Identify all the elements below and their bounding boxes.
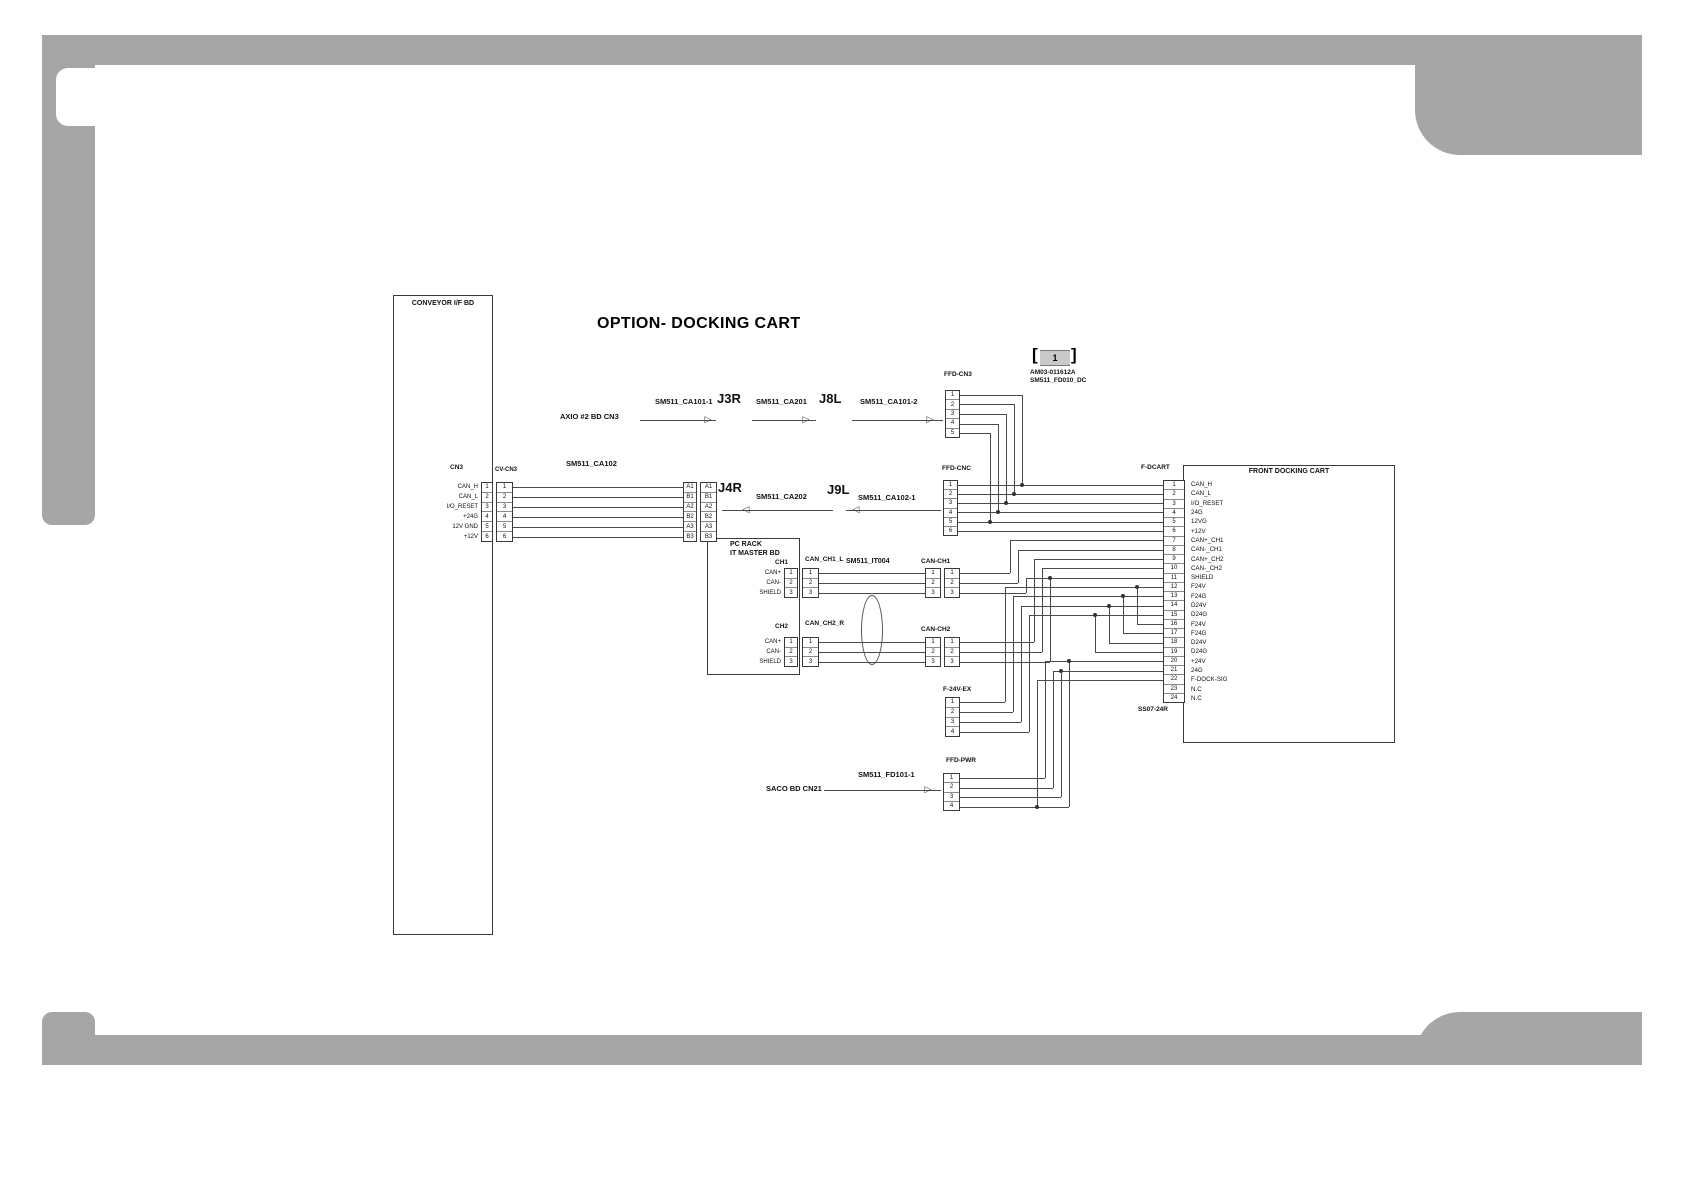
pin-cell: 20 (1164, 656, 1184, 665)
pin-cell: CAN+_CH2 (1191, 554, 1301, 563)
wire-segment (1006, 414, 1007, 503)
pin-cell: 3 (1164, 499, 1184, 508)
cv-cn3-pin-box: 123456 (496, 482, 513, 542)
ch2-pin-box-left: 123 (784, 637, 798, 667)
pin-cell: 2 (785, 578, 797, 588)
pin-cell: 1 (803, 638, 818, 647)
junction-dot (1035, 805, 1039, 809)
pin-cell: 1 (945, 569, 959, 578)
wire-segment (960, 583, 1018, 584)
can-ch1-pin-box-right: 123 (944, 568, 960, 598)
cable-bundle-icon (861, 595, 883, 665)
pin-cell: 21 (1164, 665, 1184, 674)
wire-segment (1095, 652, 1163, 653)
pin-cell: 6 (944, 526, 957, 535)
pin-cell: +12V (1191, 526, 1301, 535)
pin-cell: D24V (1191, 638, 1301, 647)
wire-segment (513, 507, 683, 508)
can-ch1-l-cable-label: CAN_CH1_L (805, 556, 843, 563)
pin-cell: CAN-_CH2 (1191, 564, 1301, 573)
wire-segment (1018, 550, 1163, 551)
wire-segment (960, 414, 1006, 415)
pin-cell: F-DOCK-SIG (1191, 675, 1301, 684)
wire-segment (1137, 587, 1138, 624)
pin-cell: 4 (497, 511, 512, 521)
pin-cell: 1 (926, 638, 940, 647)
wire-segment (722, 510, 833, 511)
pin-cell: 4 (944, 801, 959, 810)
wire-segment (1045, 661, 1046, 778)
pin-cell: B2 (701, 511, 716, 521)
arrow-right-icon (803, 415, 810, 424)
pin-cell: CAN- (738, 647, 781, 657)
pin-cell: 3 (945, 587, 959, 597)
arrow-left-icon (743, 505, 750, 514)
pin-cell: 5 (946, 428, 959, 437)
pin-cell: 17 (1164, 628, 1184, 637)
pin-cell: +12V (398, 532, 478, 542)
wire-segment (1037, 680, 1038, 807)
pin-cell: 7 (1164, 536, 1184, 545)
pin-cell: 2 (946, 399, 959, 408)
wire-segment (1042, 568, 1163, 569)
pin-cell: 6 (482, 531, 492, 541)
junction-dot (1012, 492, 1016, 496)
pin-cell: D24G (1191, 647, 1301, 656)
can-ch2-r-cable-label: CAN_CH2_R (805, 620, 844, 627)
junction-dot (1121, 594, 1125, 598)
pin-cell: CAN- (738, 578, 781, 588)
connector-label-j4r: J4R (718, 481, 742, 496)
wire-segment (1042, 568, 1043, 652)
wire-segment (1010, 540, 1163, 541)
pin-cell: 18 (1164, 637, 1184, 646)
wire-segment (1053, 671, 1054, 788)
pin-cell: 2 (926, 578, 940, 588)
pin-cell: 2 (803, 647, 818, 657)
pin-cell: I/O_RESET (398, 502, 478, 512)
pin-cell: F24G (1191, 592, 1301, 601)
wire-segment (1018, 550, 1019, 583)
cable-label-ca101-1: SM511_CA101-1 (655, 398, 713, 407)
pin-cell: 1 (803, 569, 818, 578)
pin-cell: 2 (946, 707, 959, 717)
ab-pin-box-right: A1B1A2B2A3B3 (700, 482, 717, 542)
junction-dot (1004, 501, 1008, 505)
can-ch2-label: CAN-CH2 (921, 626, 950, 633)
wire-segment (819, 593, 925, 594)
pin-cell: B2 (684, 511, 696, 521)
pin-cell: A1 (701, 483, 716, 492)
pin-cell: 3 (926, 587, 940, 597)
pin-cell: CAN+ (738, 637, 781, 647)
page-title: OPTION- DOCKING CART (597, 315, 801, 333)
wire-segment (1109, 606, 1110, 643)
pin-cell: 15 (1164, 610, 1184, 619)
connector-label-j3r: J3R (717, 392, 741, 407)
junction-dot (1020, 483, 1024, 487)
wire-segment (1026, 578, 1027, 593)
pin-cell: CAN+_CH1 (1191, 536, 1301, 545)
pin-cell: 4 (1164, 508, 1184, 517)
pin-cell: N.C (1191, 685, 1301, 694)
saco-source-label: SACO BD CN21 (766, 785, 822, 794)
junction-dot (1067, 659, 1071, 663)
pin-cell: 1 (945, 638, 959, 647)
pin-cell: CAN_H (398, 482, 478, 492)
junction-dot (988, 520, 992, 524)
can-ch1-label: CAN-CH1 (921, 558, 950, 565)
ffd-pwr-pin-box: 1234 (943, 773, 960, 811)
cable-label-ca102-1: SM511_CA102-1 (858, 494, 916, 503)
pin-cell: 3 (803, 656, 818, 666)
pin-cell: CAN-_CH1 (1191, 545, 1301, 554)
pin-cell: 24G (1191, 508, 1301, 517)
pin-cell: F24G (1191, 629, 1301, 638)
pin-cell: 3 (497, 502, 512, 512)
wire-segment (958, 531, 1163, 532)
wire-segment (846, 510, 941, 511)
wire-segment (824, 790, 941, 791)
pin-cell: 5 (1164, 517, 1184, 526)
pin-cell: B1 (701, 492, 716, 502)
wire-segment (960, 702, 1005, 703)
bracket-left-icon (1032, 346, 1038, 363)
pin-cell: F24V (1191, 582, 1301, 591)
pin-cell: 2 (926, 647, 940, 657)
pin-cell: 3 (946, 717, 959, 727)
pin-cell: 24 (1164, 693, 1184, 702)
junction-dot (1059, 669, 1063, 673)
can-ch1-pin-box-left: 123 (925, 568, 941, 598)
wire-segment (960, 395, 1022, 396)
pin-cell: D24V (1191, 601, 1301, 610)
pin-cell: A3 (684, 521, 696, 531)
wire-segment (1026, 578, 1163, 579)
ch1-pin-box-left: 123 (784, 568, 798, 598)
wire-segment (960, 732, 1029, 733)
pin-cell: CAN_H (1191, 480, 1301, 489)
wire-segment (1029, 615, 1030, 732)
wire-segment (1010, 540, 1011, 573)
pin-cell: +24G (398, 512, 478, 522)
pin-cell: CAN_L (398, 492, 478, 502)
pin-cell: 3 (482, 502, 492, 512)
pin-cell: A2 (684, 502, 696, 512)
pin-cell: 2 (1164, 489, 1184, 498)
pin-cell: 16 (1164, 619, 1184, 628)
it004-cable-label: SM511_IT004 (846, 558, 890, 566)
pin-cell: 12V GND (398, 522, 478, 532)
pin-cell: A2 (701, 502, 716, 512)
pin-cell: I/O_RESET (1191, 499, 1301, 508)
wire-segment (1045, 661, 1163, 662)
conveyor-board-box (393, 295, 493, 935)
pin-cell: 24G (1191, 666, 1301, 675)
wire-segment (1095, 615, 1096, 652)
connector-label-j9l: J9L (827, 483, 849, 498)
cn3-label: CN3 (450, 464, 463, 471)
wire-segment (1123, 596, 1124, 633)
ffd-cn3-pin-box: 12345 (945, 390, 960, 438)
f-dcart-pin-box: 123456789101112131415161718192021222324 (1163, 480, 1185, 703)
ch1-pin-names: CAN+CAN-SHIELD (738, 568, 781, 598)
pin-cell: 3 (945, 656, 959, 666)
wire-segment (819, 583, 925, 584)
pin-cell: 9 (1164, 554, 1184, 563)
pin-cell: 4 (946, 726, 959, 736)
wire-segment (958, 494, 1163, 495)
wire-segment (960, 404, 1014, 405)
pin-cell: 1 (785, 569, 797, 578)
wire-segment (1013, 596, 1014, 712)
pin-cell: 4 (946, 418, 959, 427)
part-marker: 1 (1040, 350, 1070, 366)
pin-cell: 22 (1164, 674, 1184, 683)
pin-cell: 1 (1164, 481, 1184, 489)
cable-label-ca101-2: SM511_CA101-2 (860, 398, 918, 407)
pin-cell: 2 (482, 492, 492, 502)
wire-segment (960, 573, 1010, 574)
ffd-cnc-pin-box: 123456 (943, 480, 958, 536)
connector-label-j8l: J8L (819, 392, 841, 407)
wire-segment (960, 642, 1034, 643)
arrow-right-icon (705, 415, 712, 424)
cable-label-ca202: SM511_CA202 (756, 493, 807, 502)
pin-cell: 12 (1164, 582, 1184, 591)
pin-cell: 1 (944, 481, 957, 489)
cn3-pin-box: 123456 (481, 482, 493, 542)
pin-cell: A3 (701, 521, 716, 531)
wire-segment (990, 433, 991, 522)
pin-cell: 11 (1164, 573, 1184, 582)
junction-dot (1048, 576, 1052, 580)
pin-cell: 5 (482, 521, 492, 531)
wire-segment (1034, 559, 1163, 560)
pin-cell: 1 (785, 638, 797, 647)
pin-cell: 19 (1164, 647, 1184, 656)
wire-segment (1069, 661, 1070, 807)
pin-cell: 2 (945, 647, 959, 657)
pin-cell: 1 (946, 698, 959, 707)
wire-segment (819, 573, 925, 574)
pin-cell: F24V (1191, 619, 1301, 628)
pin-cell: B1 (684, 492, 696, 502)
pin-cell: 5 (497, 521, 512, 531)
pin-cell: D24G (1191, 610, 1301, 619)
pin-cell: 14 (1164, 600, 1184, 609)
f24v-ex-pin-box: 1234 (945, 697, 960, 737)
pin-cell: 8 (1164, 545, 1184, 554)
pin-cell: 1 (926, 569, 940, 578)
cable-label-ca201: SM511_CA201 (756, 398, 807, 407)
pin-cell: 1 (944, 774, 959, 782)
wire-segment (1022, 395, 1023, 485)
pc-rack-title-line2: IT MASTER BD (730, 550, 780, 558)
wire-segment (1037, 680, 1163, 681)
pin-cell: 2 (803, 578, 818, 588)
ch2-pin-box-right: 123 (802, 637, 819, 667)
pin-cell: 23 (1164, 684, 1184, 693)
wire-segment (1034, 559, 1035, 642)
arrow-left-icon (853, 505, 860, 514)
pin-cell: 6 (1164, 526, 1184, 535)
wire-segment (960, 807, 1069, 808)
pin-cell: 2 (785, 647, 797, 657)
f24v-ex-label: F-24V-EX (943, 686, 971, 693)
pin-cell: 3 (944, 498, 957, 507)
wire-segment (958, 485, 1163, 486)
wire-segment (958, 503, 1163, 504)
pin-cell: B3 (701, 531, 716, 541)
pin-cell: 4 (482, 511, 492, 521)
wire-segment (1005, 587, 1006, 702)
pin-cell: 10 (1164, 563, 1184, 572)
can-ch2-pin-box-left: 123 (925, 637, 941, 667)
pin-cell: 2 (944, 782, 959, 791)
cn3-pin-names: CAN_HCAN_LI/O_RESET+24G12V GND+12V (398, 482, 478, 542)
wire-segment (513, 537, 683, 538)
pin-cell: 4 (944, 508, 957, 517)
pin-cell: 1 (497, 483, 512, 492)
ss07-24r-label: SS07-24R (1138, 706, 1168, 713)
wire-segment (1021, 606, 1022, 722)
ch1-label: CH1 (775, 559, 788, 566)
wire-segment (958, 512, 1163, 513)
pin-cell: 6 (497, 531, 512, 541)
junction-dot (996, 510, 1000, 514)
wire-segment (960, 593, 1026, 594)
bracket-right-icon (1071, 346, 1077, 363)
pin-cell: 2 (944, 489, 957, 498)
f-dcart-pin-names: CAN_HCAN_LI/O_RESET24G12VG+12VCAN+_CH1CA… (1191, 480, 1301, 703)
pin-cell: 13 (1164, 591, 1184, 600)
wire-segment (513, 517, 683, 518)
pin-cell: CAN_L (1191, 489, 1301, 498)
pin-cell: 3 (785, 587, 797, 597)
pin-cell: SHIELD (1191, 573, 1301, 582)
part-number-label: AM03-011612A (1030, 369, 1076, 376)
arrow-right-icon (925, 785, 932, 794)
pin-cell: 12VG (1191, 517, 1301, 526)
wire-segment (998, 424, 999, 512)
ch2-label: CH2 (775, 623, 788, 630)
pin-cell: N.C (1191, 694, 1301, 703)
ffd-cnc-label: FFD-CNC (942, 465, 971, 472)
pin-cell: 3 (803, 587, 818, 597)
pin-cell: 3 (926, 656, 940, 666)
wire-segment (960, 778, 1045, 779)
wire-segment (1109, 643, 1163, 644)
front-docking-cart-title: FRONT DOCKING CART (1183, 468, 1395, 476)
pin-cell: 5 (944, 517, 957, 526)
wire-segment (1123, 633, 1163, 634)
wire-segment (1137, 624, 1163, 625)
wire-segment (1050, 578, 1051, 662)
cable-label-ca102: SM511_CA102 (566, 460, 617, 469)
part-name-label: SM511_FD010_DC (1030, 377, 1086, 384)
wiring-diagram: CONVEYOR I/F BD OPTION- DOCKING CART AXI… (0, 0, 1684, 1190)
pin-cell: +24V (1191, 657, 1301, 666)
ffd-pwr-label: FFD-PWR (946, 757, 976, 764)
conveyor-board-title: CONVEYOR I/F BD (396, 300, 490, 308)
pin-cell: A1 (684, 483, 696, 492)
ab-pin-box-left: A1B1A2B2A3B3 (683, 482, 697, 542)
f-dcart-label: F-DCART (1141, 464, 1170, 471)
junction-dot (1107, 604, 1111, 608)
pin-cell: 1 (482, 483, 492, 492)
pin-cell: 3 (946, 409, 959, 418)
schematic-page: CONVEYOR I/F BD OPTION- DOCKING CART AXI… (0, 0, 1684, 1190)
pin-cell: SHIELD (738, 588, 781, 598)
pin-cell: B3 (684, 531, 696, 541)
wire-segment (960, 722, 1021, 723)
axio-source-label: AXIO #2 BD CN3 (560, 413, 619, 422)
wire-segment (513, 527, 683, 528)
can-ch2-pin-box-right: 123 (944, 637, 960, 667)
pc-rack-title-line1: PC RACK (730, 541, 762, 549)
pin-cell: SHIELD (738, 657, 781, 667)
pin-cell: CAN+ (738, 568, 781, 578)
wire-segment (1014, 404, 1015, 494)
pin-cell: 3 (785, 656, 797, 666)
ch1-pin-box-right: 123 (802, 568, 819, 598)
junction-dot (1135, 585, 1139, 589)
wire-segment (960, 788, 1053, 789)
pin-cell: 2 (945, 578, 959, 588)
wire-segment (1005, 587, 1163, 588)
wire-segment (513, 497, 683, 498)
ffd-cn3-label: FFD-CN3 (944, 371, 972, 378)
pin-cell: 1 (946, 391, 959, 399)
wire-segment (1013, 596, 1163, 597)
arrow-right-icon (927, 415, 934, 424)
wire-segment (960, 712, 1013, 713)
ch2-pin-names: CAN+CAN-SHIELD (738, 637, 781, 667)
junction-dot (1093, 613, 1097, 617)
pin-cell: 3 (944, 792, 959, 801)
cable-label-fd101-1: SM511_FD101-1 (858, 771, 915, 780)
wire-segment (960, 797, 1061, 798)
wire-segment (1061, 671, 1062, 797)
wire-segment (513, 487, 683, 488)
pin-cell: 2 (497, 492, 512, 502)
wire-segment (960, 433, 990, 434)
cv-cn3-label: CV-CN3 (495, 467, 517, 474)
wire-segment (960, 424, 998, 425)
